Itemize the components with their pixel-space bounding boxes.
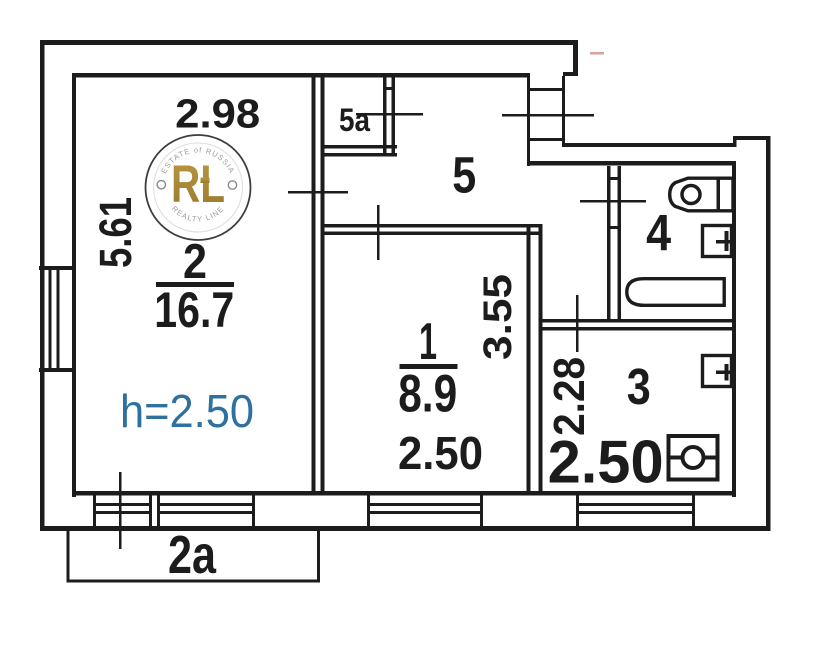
svg-text:5.61: 5.61	[90, 197, 141, 268]
svg-text:RL: RL	[171, 155, 225, 214]
svg-text:5: 5	[452, 147, 476, 204]
svg-text:2.50: 2.50	[398, 427, 483, 479]
svg-text:2.50: 2.50	[548, 429, 664, 496]
svg-text:4: 4	[646, 204, 672, 261]
svg-text:2: 2	[183, 235, 207, 289]
svg-text:5a: 5a	[339, 102, 370, 138]
svg-text:h=2.50: h=2.50	[120, 385, 254, 437]
svg-text:2.98: 2.98	[175, 91, 260, 137]
svg-text:3: 3	[627, 358, 651, 415]
svg-text:3.55: 3.55	[476, 274, 520, 360]
svg-text:16.7: 16.7	[154, 282, 234, 338]
svg-text:1: 1	[419, 313, 437, 371]
svg-text:2.28: 2.28	[545, 357, 594, 436]
svg-text:8.9: 8.9	[398, 365, 457, 424]
svg-text:2a: 2a	[168, 525, 217, 585]
